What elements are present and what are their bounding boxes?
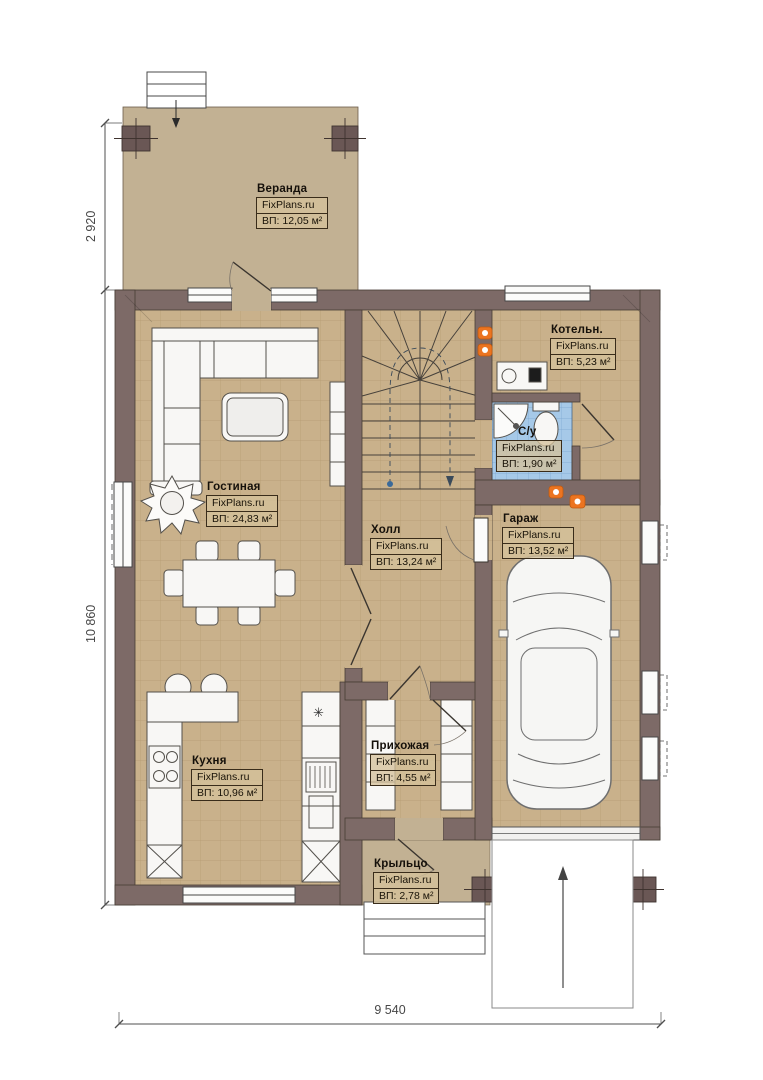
room-info-box: FixPlans.ru ВП: 12,05 м² bbox=[256, 197, 328, 229]
coffee-table bbox=[222, 393, 288, 441]
room-label-garazh: Гараж FixPlans.ru ВП: 13,52 м² bbox=[502, 513, 574, 559]
boiler-unit bbox=[497, 362, 547, 390]
freezer-star-icon: ✳ bbox=[313, 705, 324, 720]
room-label-kotelnaya: Котельн. FixPlans.ru ВП: 5,23 м² bbox=[550, 324, 616, 370]
window-boiler bbox=[505, 286, 590, 301]
room-name: Холл bbox=[371, 524, 442, 536]
stair-hall-floor bbox=[362, 310, 475, 682]
room-name: Прихожая bbox=[371, 740, 436, 752]
room-info-box: FixPlans.ru ВП: 24,83 м² bbox=[206, 495, 278, 527]
room-name: С/у bbox=[518, 426, 562, 438]
room-info-box: FixPlans.ru ВП: 4,55 м² bbox=[370, 754, 436, 786]
room-area: ВП: 13,52 м² bbox=[503, 543, 573, 559]
room-info-box: FixPlans.ru ВП: 10,96 м² bbox=[191, 769, 263, 801]
room-label-holl: Холл FixPlans.ru ВП: 13,24 м² bbox=[370, 524, 442, 570]
room-label-veranda: Веранда FixPlans.ru ВП: 12,05 м² bbox=[256, 183, 328, 229]
window-kitchen bbox=[183, 887, 295, 903]
floor-plan: ✳ bbox=[0, 0, 763, 1080]
dim-veranda-depth: 2 920 bbox=[84, 172, 98, 242]
car bbox=[499, 556, 619, 809]
room-area: ВП: 4,55 м² bbox=[371, 770, 435, 786]
room-name: Гараж bbox=[503, 513, 574, 525]
room-area: ВП: 12,05 м² bbox=[257, 213, 327, 229]
garage-door bbox=[492, 827, 640, 840]
room-label-gostinaya: Гостиная FixPlans.ru ВП: 24,83 м² bbox=[206, 481, 278, 527]
room-label-kuhnya: Кухня FixPlans.ru ВП: 10,96 м² bbox=[191, 755, 263, 801]
window-living-left bbox=[188, 288, 232, 302]
room-area: ВП: 10,96 м² bbox=[192, 785, 262, 801]
stove bbox=[149, 746, 180, 788]
window-living-right bbox=[271, 288, 317, 302]
driveway-apron bbox=[492, 840, 633, 1008]
sink-cabinet bbox=[147, 845, 182, 878]
room-label-su: С/у FixPlans.ru ВП: 1,90 м² bbox=[496, 426, 562, 472]
window-living-side bbox=[112, 482, 132, 567]
room-area: ВП: 5,23 м² bbox=[551, 354, 615, 370]
watermark-text: FixPlans.ru bbox=[374, 873, 438, 888]
watermark-text: FixPlans.ru bbox=[503, 528, 573, 543]
dim-house-depth: 10 860 bbox=[84, 555, 98, 643]
room-name: Веранда bbox=[257, 183, 328, 195]
window-garage-3 bbox=[642, 737, 667, 780]
room-area: ВП: 13,24 м² bbox=[371, 554, 441, 570]
watermark-text: FixPlans.ru bbox=[207, 496, 277, 511]
watermark-text: FixPlans.ru bbox=[551, 339, 615, 354]
window-garage-2 bbox=[642, 671, 667, 714]
room-info-box: FixPlans.ru ВП: 13,24 м² bbox=[370, 538, 442, 570]
room-name: Крыльцо bbox=[374, 858, 439, 870]
room-name: Котельн. bbox=[551, 324, 616, 336]
room-name: Гостиная bbox=[207, 481, 278, 493]
room-label-kryltso: Крыльцо FixPlans.ru ВП: 2,78 м² bbox=[373, 858, 439, 904]
room-area: ВП: 24,83 м² bbox=[207, 511, 277, 527]
room-label-prihozhaya: Прихожая FixPlans.ru ВП: 4,55 м² bbox=[370, 740, 436, 786]
porch-steps bbox=[364, 902, 485, 954]
watermark-text: FixPlans.ru bbox=[192, 770, 262, 785]
room-area: ВП: 1,90 м² bbox=[497, 456, 561, 472]
room-name: Кухня bbox=[192, 755, 263, 767]
kitchen-tall-units: ✳ bbox=[302, 692, 340, 882]
watermark-text: FixPlans.ru bbox=[371, 539, 441, 554]
window-garage-1 bbox=[642, 521, 667, 564]
room-info-box: FixPlans.ru ВП: 13,52 м² bbox=[502, 527, 574, 559]
watermark-text: FixPlans.ru bbox=[257, 198, 327, 213]
dim-house-width: 9 540 bbox=[355, 1003, 425, 1017]
room-area: ВП: 2,78 м² bbox=[374, 888, 438, 904]
room-info-box: FixPlans.ru ВП: 1,90 м² bbox=[496, 440, 562, 472]
room-info-box: FixPlans.ru ВП: 2,78 м² bbox=[373, 872, 439, 904]
watermark-text: FixPlans.ru bbox=[497, 441, 561, 456]
watermark-text: FixPlans.ru bbox=[371, 755, 435, 770]
room-info-box: FixPlans.ru ВП: 5,23 м² bbox=[550, 338, 616, 370]
